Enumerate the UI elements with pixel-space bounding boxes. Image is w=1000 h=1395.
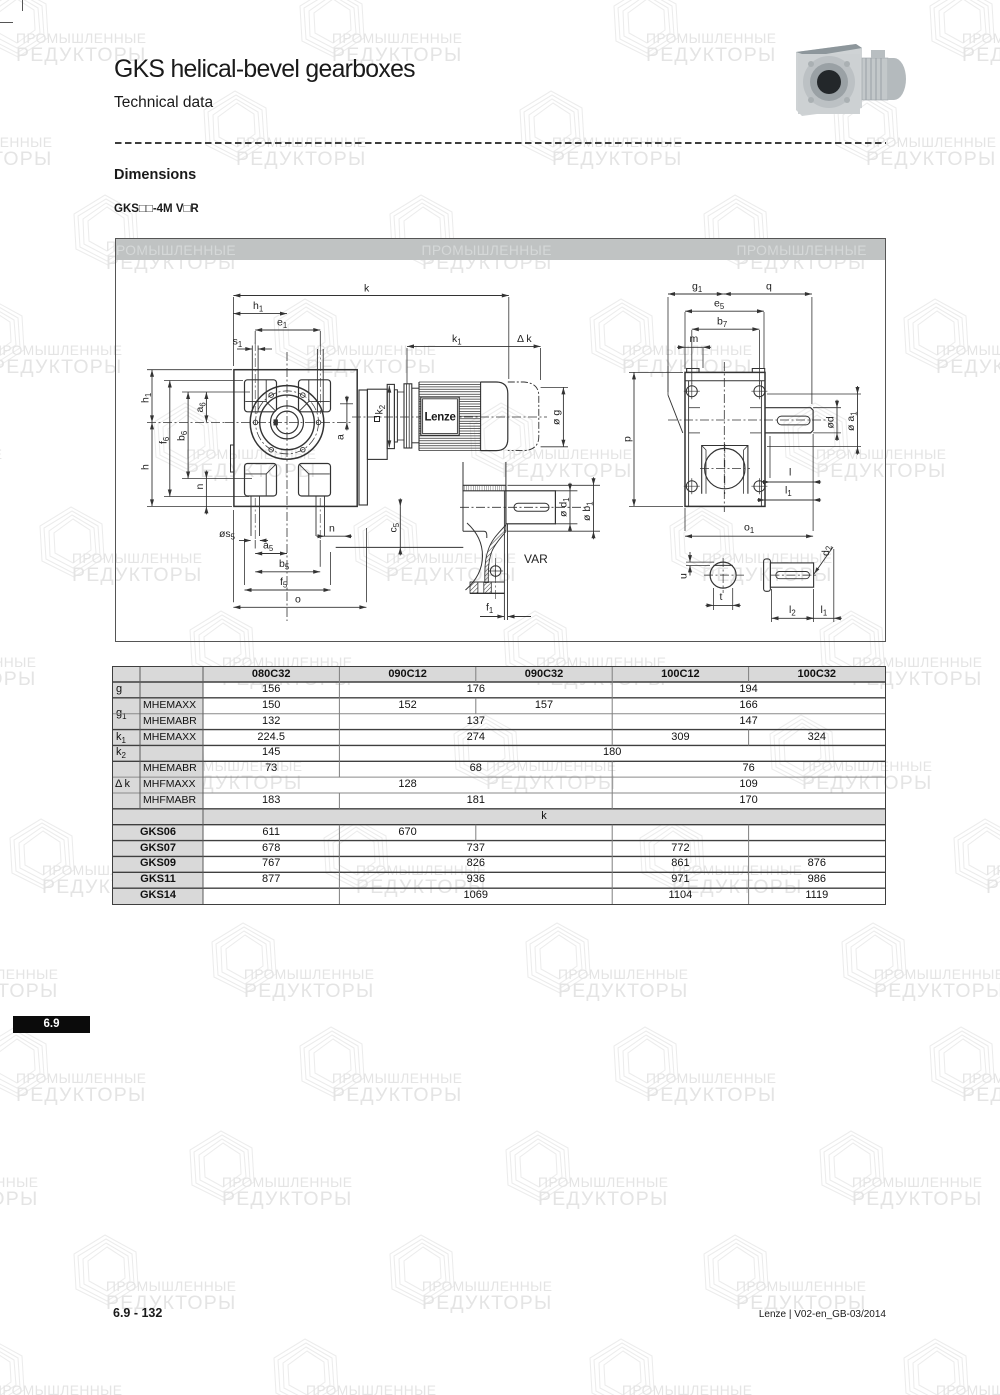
svg-text:h1: h1 xyxy=(253,300,263,314)
svg-text:e1: e1 xyxy=(277,317,287,331)
svg-text:a6: a6 xyxy=(194,402,208,412)
svg-text:Δ k: Δ k xyxy=(517,333,532,345)
svg-text:ø b1: ø b1 xyxy=(581,501,595,521)
svg-text:ø d1: ø d1 xyxy=(557,497,571,517)
svg-text:d2: d2 xyxy=(820,546,834,556)
svg-text:k: k xyxy=(364,283,370,295)
svg-text:b6: b6 xyxy=(176,431,190,441)
svg-text:f6: f6 xyxy=(157,437,171,444)
svg-text:c5: c5 xyxy=(388,522,402,532)
svg-text:l1: l1 xyxy=(785,484,792,498)
svg-text:k2: k2 xyxy=(374,405,388,415)
svg-text:b5: b5 xyxy=(279,558,290,572)
svg-text:VAR: VAR xyxy=(524,552,548,566)
svg-text:h1: h1 xyxy=(140,393,154,403)
svg-text:l: l xyxy=(789,466,791,478)
svg-text:o: o xyxy=(295,593,301,605)
svg-text:k1: k1 xyxy=(452,333,462,347)
svg-text:a5: a5 xyxy=(263,540,274,554)
svg-text:a: a xyxy=(334,434,346,440)
svg-text:Lenze: Lenze xyxy=(424,412,455,424)
svg-text:ød: ød xyxy=(824,416,836,428)
svg-text:n: n xyxy=(194,484,206,490)
svg-text:q: q xyxy=(766,281,772,293)
svg-text:e5: e5 xyxy=(714,298,725,312)
svg-text:h: h xyxy=(140,464,152,470)
svg-text:m: m xyxy=(690,333,699,345)
svg-text:ø a1: ø a1 xyxy=(845,411,859,431)
svg-text:ø g: ø g xyxy=(551,410,563,425)
svg-text:p: p xyxy=(621,436,633,442)
svg-text:o1: o1 xyxy=(744,521,754,535)
svg-text:g1: g1 xyxy=(692,281,702,295)
svg-text:l1: l1 xyxy=(821,604,828,618)
svg-text:f1: f1 xyxy=(486,602,493,616)
svg-text:s1: s1 xyxy=(233,336,243,350)
svg-text:n: n xyxy=(329,523,335,535)
svg-text:b7: b7 xyxy=(717,316,727,330)
svg-text:t: t xyxy=(720,591,723,603)
svg-text:l2: l2 xyxy=(789,604,796,618)
svg-text:u: u xyxy=(678,573,690,579)
